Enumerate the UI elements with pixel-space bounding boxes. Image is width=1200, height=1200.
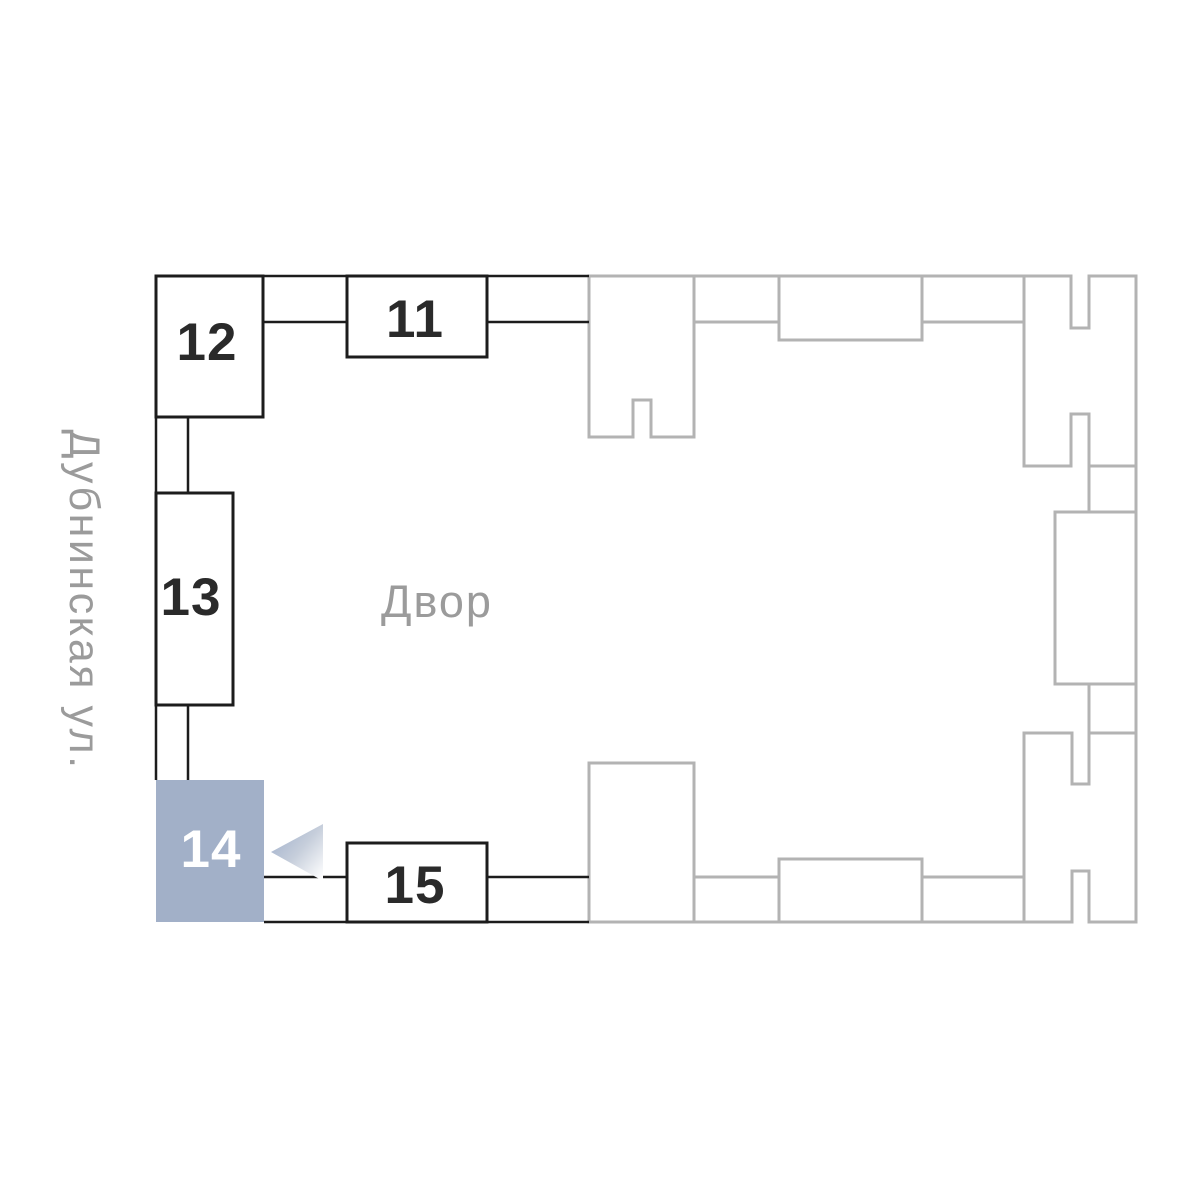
courtyard-label: Двор bbox=[381, 576, 493, 627]
building-14-label: 14 bbox=[181, 820, 242, 879]
context-building-top-middle bbox=[589, 276, 694, 437]
context-building-right-connector-lower bbox=[1089, 684, 1136, 733]
building-11[interactable]: 11 bbox=[347, 276, 487, 357]
building-13-label: 13 bbox=[161, 568, 222, 627]
context-building-right-connector-upper bbox=[1089, 466, 1136, 512]
context-building-top-right bbox=[1024, 276, 1136, 466]
context-corridor-lines bbox=[694, 276, 1024, 922]
street-label: Дубнинская ул. bbox=[60, 429, 108, 770]
context-building-right-large bbox=[1055, 512, 1136, 684]
building-14-selected[interactable]: 14 bbox=[156, 780, 264, 922]
building-15-label: 15 bbox=[385, 856, 446, 915]
building-12-label: 12 bbox=[177, 313, 238, 372]
context-building-bottom-middle bbox=[589, 763, 694, 922]
building-13[interactable]: 13 bbox=[156, 493, 233, 705]
building-11-label: 11 bbox=[386, 290, 444, 349]
context-buildings-group bbox=[589, 276, 1136, 922]
context-building-bottom-right bbox=[1024, 733, 1136, 922]
selected-building-pointer-icon bbox=[271, 824, 323, 881]
building-15[interactable]: 15 bbox=[347, 843, 487, 922]
context-building-bottom-wide bbox=[779, 859, 922, 922]
site-plan-svg: 12 11 13 15 14 Двор Дубнинская ул. bbox=[0, 0, 1200, 1200]
building-12[interactable]: 12 bbox=[156, 276, 263, 417]
context-building-top-wide bbox=[779, 276, 922, 340]
site-plan-canvas: 12 11 13 15 14 Двор Дубнинская ул. bbox=[0, 0, 1200, 1200]
